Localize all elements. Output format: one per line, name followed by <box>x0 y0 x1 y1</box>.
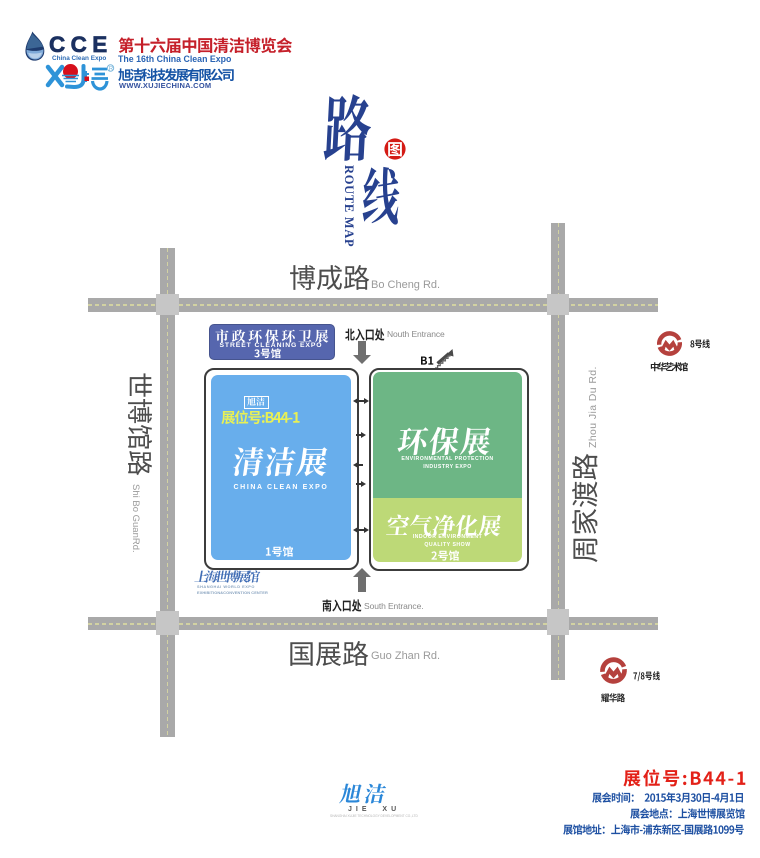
svg-text:R: R <box>109 66 114 72</box>
